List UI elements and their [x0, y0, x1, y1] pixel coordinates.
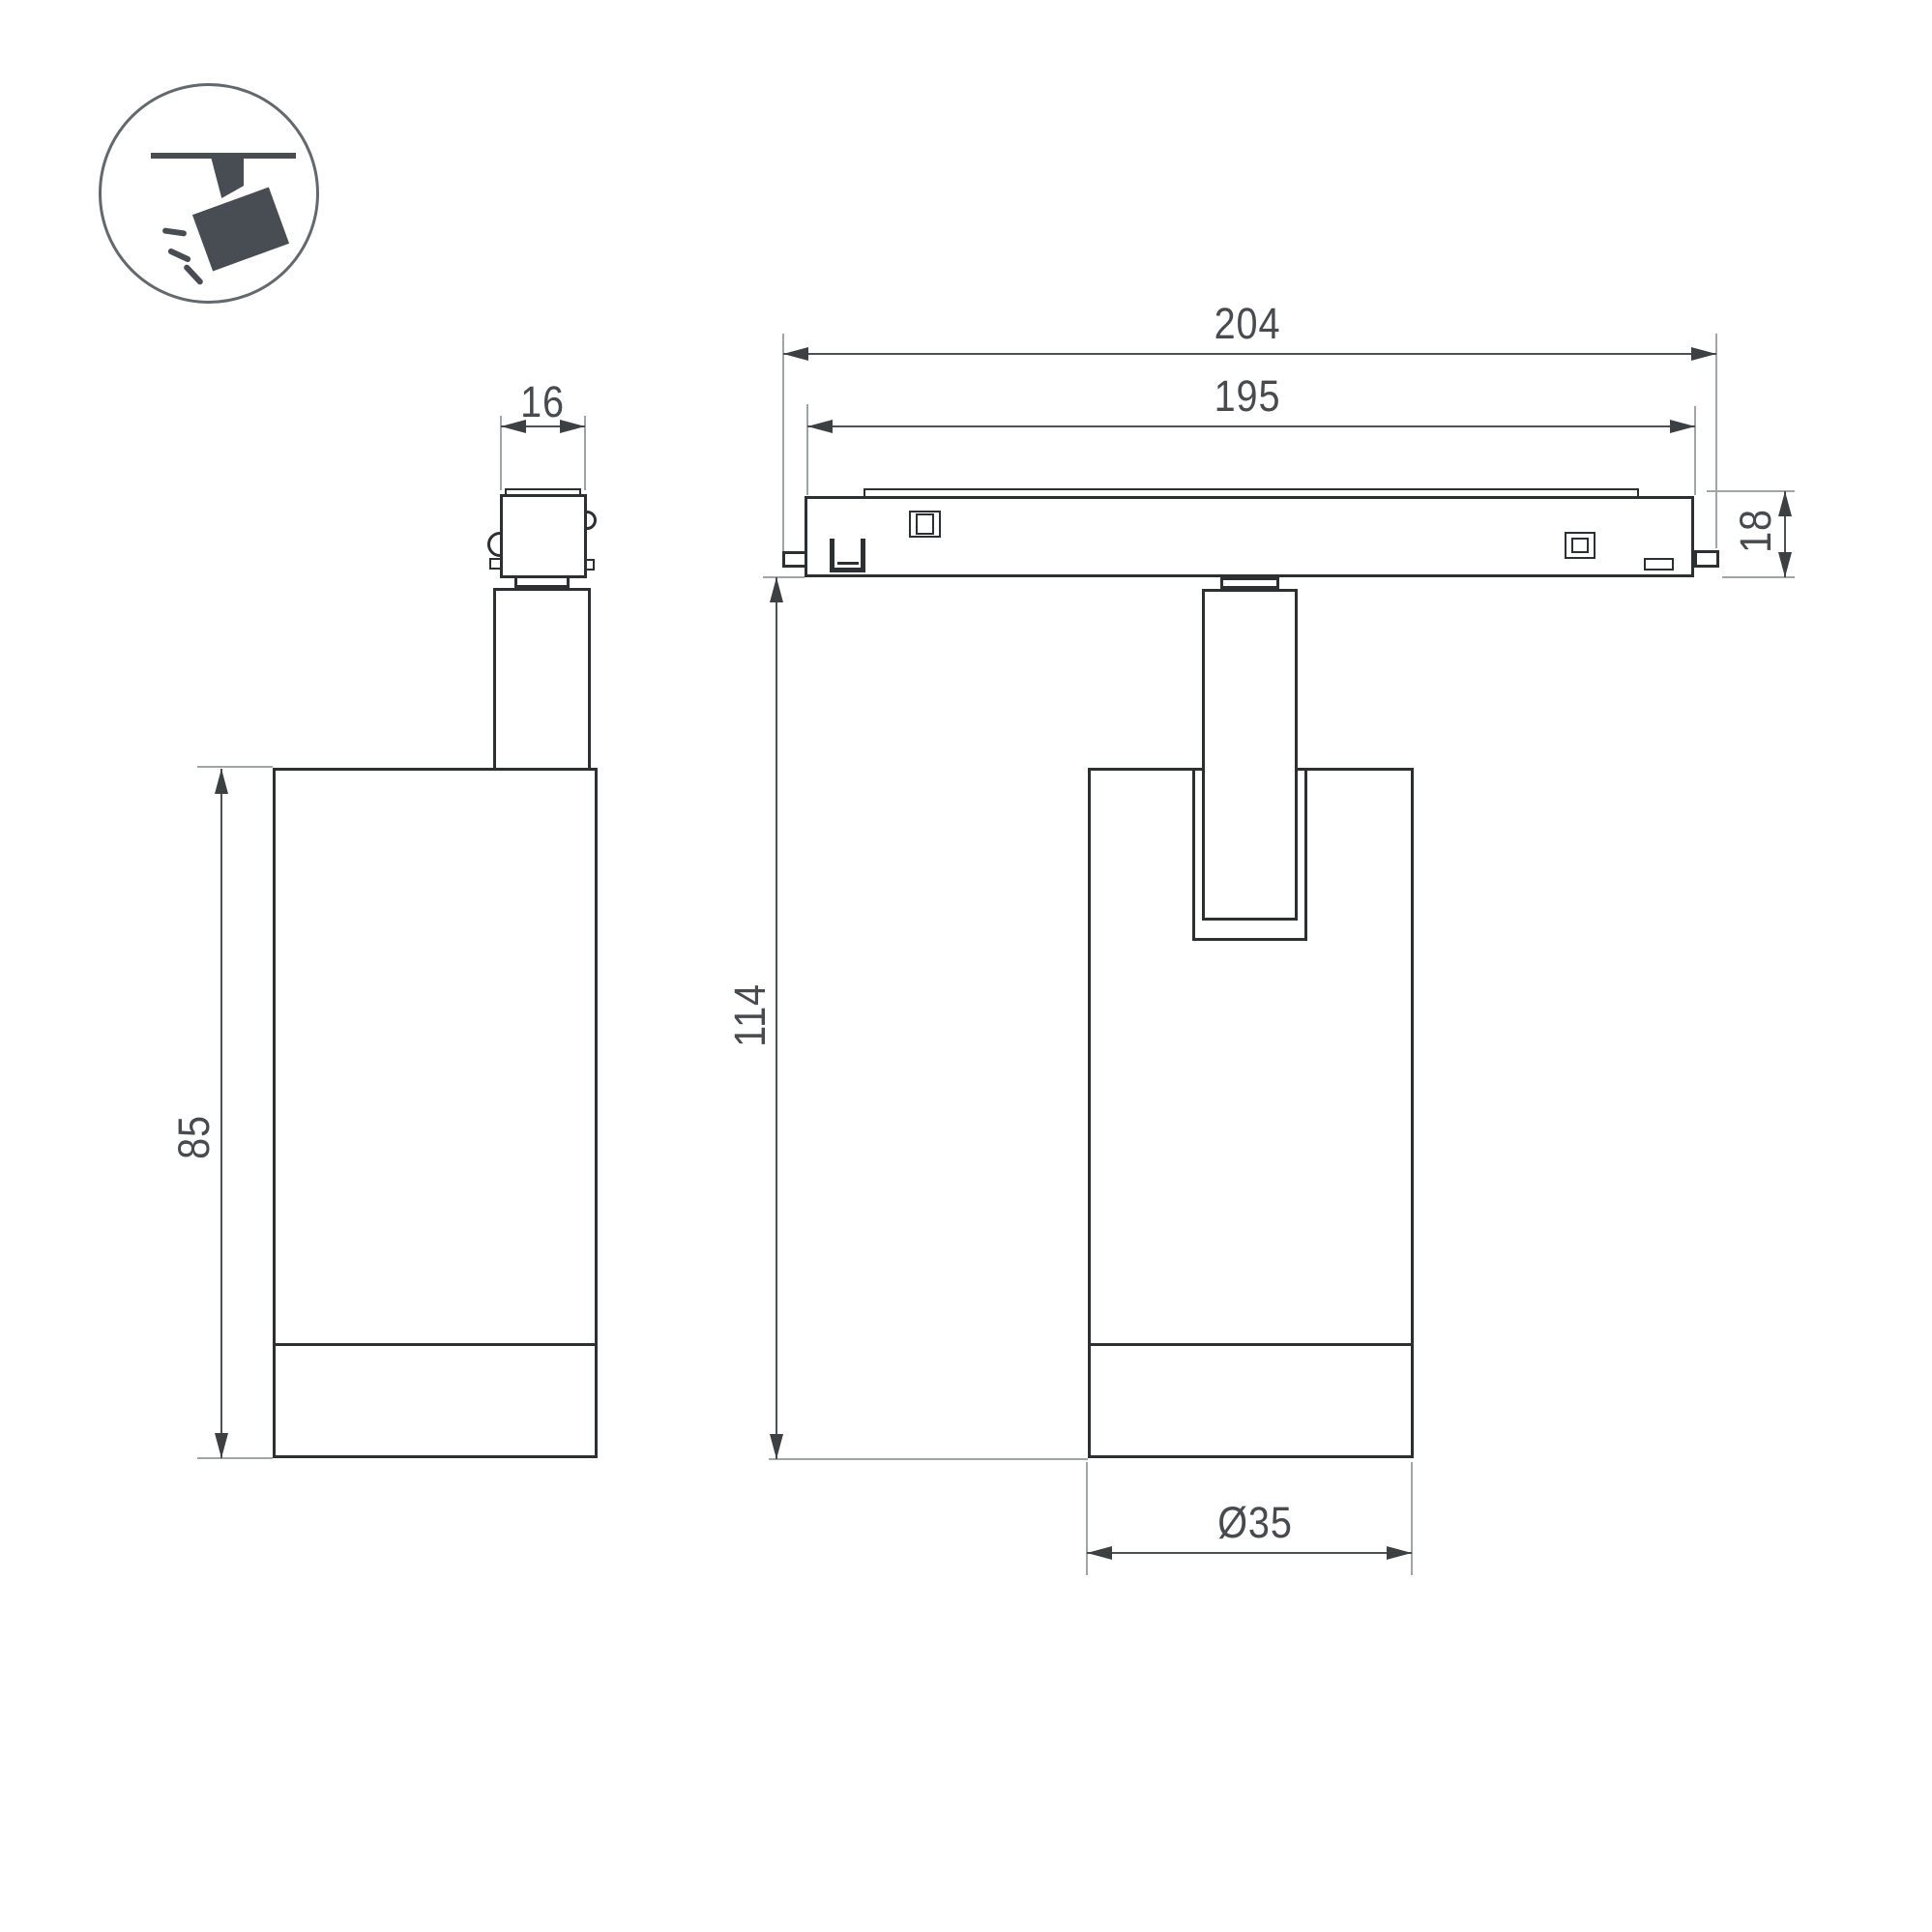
dim85-arrow-bottom: [215, 1433, 228, 1458]
dim195-extension-left: [806, 404, 808, 495]
front-rail-clip-b-inner: [1571, 538, 1589, 553]
icon-spot-head: [192, 188, 289, 272]
front-stem: [1202, 589, 1298, 921]
side-body-seam: [275, 1343, 596, 1346]
dim18-label: 18: [1731, 509, 1781, 553]
front-rail-clip-a-inner: [916, 513, 934, 535]
icon-light-ray: [162, 227, 188, 236]
dim204-arrow-right: [1691, 347, 1716, 361]
dim35-arrow-left: [1087, 1546, 1112, 1560]
dim204-label: 204: [1215, 299, 1281, 349]
front-track-top-plate: [864, 488, 1639, 496]
dim114-label: 114: [725, 983, 776, 1047]
dim85-line: [220, 769, 222, 1458]
front-stem-nub: [1220, 577, 1279, 589]
dim195-arrow-right: [1670, 420, 1695, 433]
dim204-arrow-left: [783, 347, 808, 361]
dim204-line: [783, 353, 1716, 355]
dim18-arrow-bottom: [1778, 552, 1792, 577]
dim204-extension-right: [1715, 334, 1717, 548]
dim85-extension-top: [197, 766, 273, 768]
icon-mount-stem: [211, 157, 244, 198]
dim114-line: [776, 577, 777, 1459]
side-track-adapter: [500, 494, 587, 578]
dim195-line: [807, 425, 1695, 427]
dim195-arrow-left: [807, 420, 833, 433]
front-rail-end-connector-left: [782, 551, 807, 568]
dim85-extension-bottom: [197, 1457, 273, 1459]
front-rail-end-connector-right: [1694, 550, 1719, 568]
side-stem: [493, 588, 591, 771]
dim35-arrow-right: [1387, 1546, 1412, 1560]
icon-light-ray: [183, 263, 204, 285]
front-rail-contact-plate: [1644, 558, 1674, 571]
front-rail-u-clip: [830, 539, 865, 572]
dim35-line: [1087, 1552, 1412, 1554]
technical-drawing-canvas: 16 85 204 195 18 114: [0, 0, 1932, 1932]
dim195-label: 195: [1215, 371, 1281, 422]
dim35-label: Ø35: [1217, 1498, 1292, 1548]
dim114-arrow-top: [770, 577, 783, 602]
dim204-extension-left: [782, 334, 784, 551]
dim114-arrow-bottom: [770, 1434, 783, 1459]
front-body-seam: [1090, 1343, 1412, 1346]
icon-light-ray: [167, 248, 191, 263]
front-rail-u-clip-inner-line: [837, 562, 859, 565]
side-adapter-neck: [514, 575, 570, 588]
dim85-arrow-top: [215, 769, 228, 794]
dim16-label: 16: [520, 377, 565, 427]
spotlight-icon: [99, 83, 319, 304]
side-body: [273, 768, 598, 1458]
dim85-label: 85: [169, 1115, 220, 1159]
dim114-extension-bottom: [769, 1458, 1088, 1460]
